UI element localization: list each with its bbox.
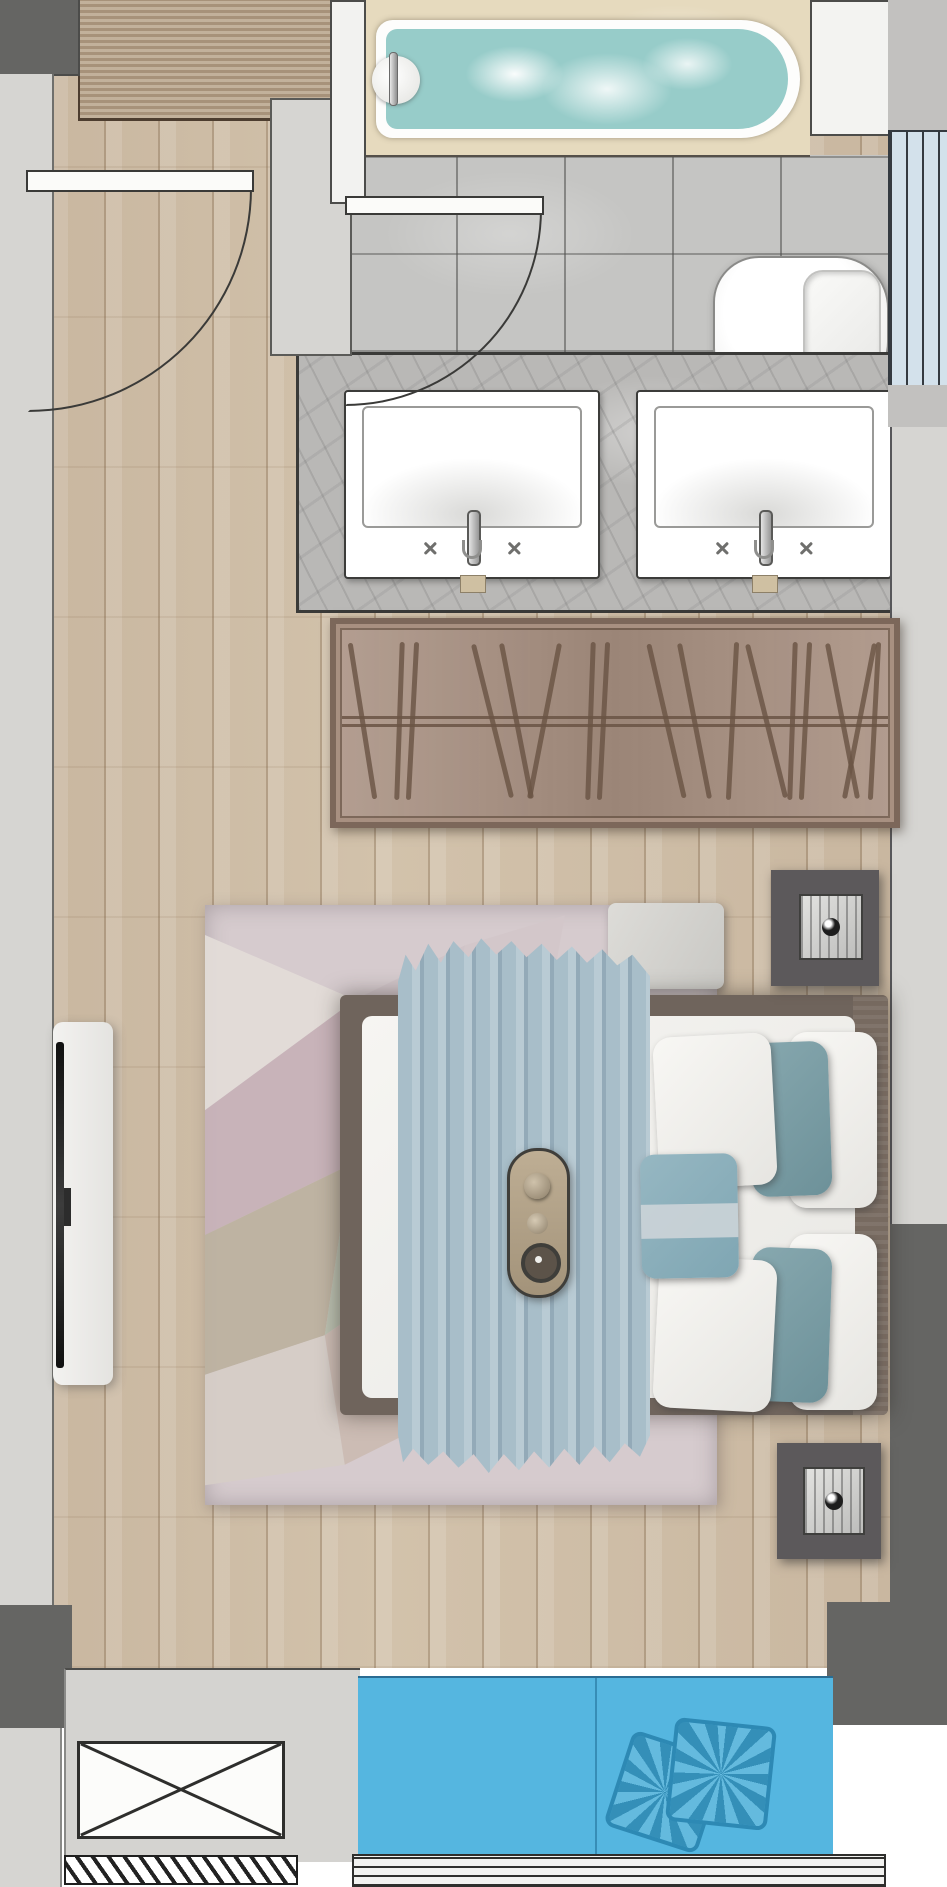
hanger-icon xyxy=(394,642,405,800)
entry-door xyxy=(26,170,254,192)
balcony-floor xyxy=(358,1676,833,1858)
table-lamp-icon xyxy=(803,1467,865,1535)
wall-stub xyxy=(330,0,366,204)
drain-pipe xyxy=(752,575,778,593)
tv-mount xyxy=(64,1188,71,1226)
balcony-cushion xyxy=(665,1717,777,1831)
accent-pillow-band xyxy=(641,1203,739,1239)
floor-plan xyxy=(0,0,947,1887)
tv xyxy=(56,1042,64,1368)
wardrobe xyxy=(330,618,900,828)
bathroom-window xyxy=(888,130,947,389)
bathtub-faucet-icon xyxy=(389,52,398,106)
tray-bowl xyxy=(524,1173,550,1199)
hanger-icon xyxy=(597,642,610,800)
breakfast-tray xyxy=(507,1148,570,1298)
wall-panel-right-of-tub xyxy=(810,0,892,136)
hanger-icon xyxy=(726,642,739,800)
balcony-floor-seam xyxy=(595,1678,597,1858)
hanger-icon xyxy=(406,642,419,800)
sink-handle-icon xyxy=(711,537,734,560)
hanger-icon xyxy=(348,643,378,800)
sink-faucet-icon xyxy=(759,510,773,566)
bathroom-door xyxy=(345,196,544,215)
sink-left xyxy=(344,390,600,579)
wardrobe-hangers xyxy=(340,628,890,818)
hanger-icon xyxy=(787,642,798,800)
tray-cup xyxy=(521,1243,561,1283)
louver-hatch xyxy=(64,1855,298,1885)
hanger-icon xyxy=(677,643,712,799)
hanger-icon xyxy=(825,643,860,799)
nightstand-bottom xyxy=(777,1443,881,1559)
hanger-icon xyxy=(585,642,596,800)
wall-top-right xyxy=(888,0,947,132)
wall-under-window xyxy=(888,385,947,427)
bathtub-water xyxy=(386,29,788,129)
hanger-icon xyxy=(799,642,812,800)
tray-bowl xyxy=(527,1213,548,1234)
sink-handle-icon xyxy=(419,537,442,560)
sliding-door-track xyxy=(352,1854,886,1887)
table-lamp-icon xyxy=(799,894,863,960)
wall-top-left xyxy=(0,0,80,76)
hanger-icon xyxy=(527,643,562,799)
ac-platform xyxy=(77,1741,285,1839)
sink-handle-icon xyxy=(795,537,818,560)
sink-handle-icon xyxy=(503,537,526,560)
sink-right xyxy=(636,390,892,579)
wall-balcony-right xyxy=(833,1663,947,1725)
hanger-icon xyxy=(745,644,788,799)
nightstand-top xyxy=(771,870,879,986)
sink-faucet-icon xyxy=(467,510,481,566)
pillow-white-bottom xyxy=(652,1255,778,1413)
accent-pillow xyxy=(640,1153,739,1279)
wall-bottom-left xyxy=(0,1605,72,1728)
wall-bottom-left-lower xyxy=(0,1728,62,1887)
drain-pipe xyxy=(460,575,486,593)
